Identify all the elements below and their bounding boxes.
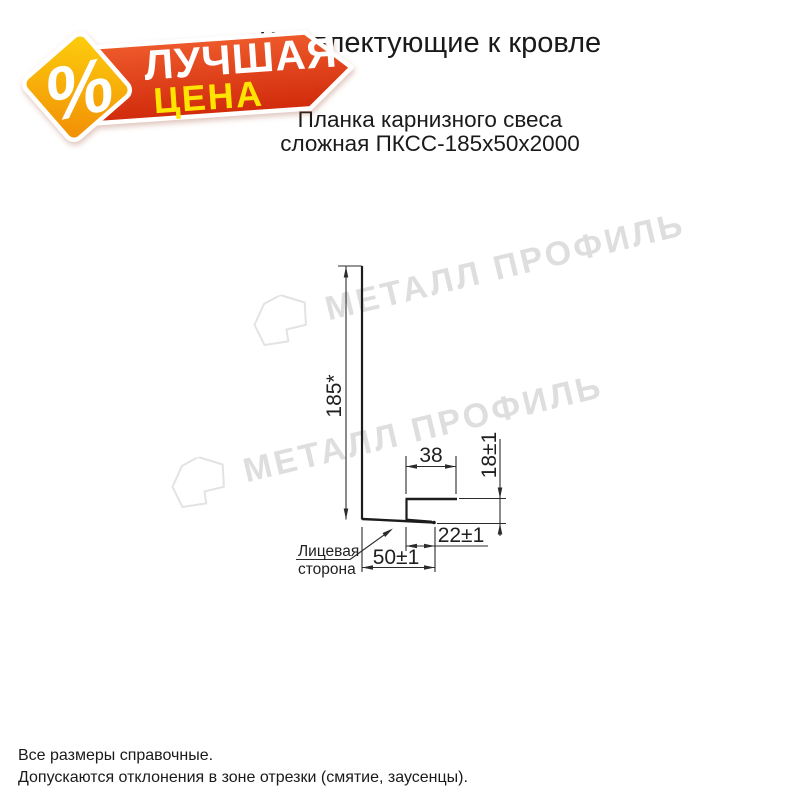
badge-word2: ЦЕНА [152, 73, 265, 122]
dimension-height: 185* [323, 374, 346, 417]
dimension-bottom-lip: 22±1 [438, 524, 485, 547]
face-side-label-line1: Лицевая [298, 543, 359, 560]
profile-outline [362, 266, 457, 524]
product-card: МЕТАЛЛ ПРОФИЛЬ МЕТАЛЛ ПРОФИЛЬ Комплектую… [0, 0, 800, 800]
dimension-top-flange: 38 [419, 444, 442, 467]
face-side-label-line2: сторона [298, 561, 356, 578]
best-price-badge: ЛУЧШАЯ ЦЕНА % [0, 0, 370, 170]
dimension-right-height: 18±1 [478, 432, 501, 479]
dimension-bottom-width: 50±1 [373, 546, 420, 569]
